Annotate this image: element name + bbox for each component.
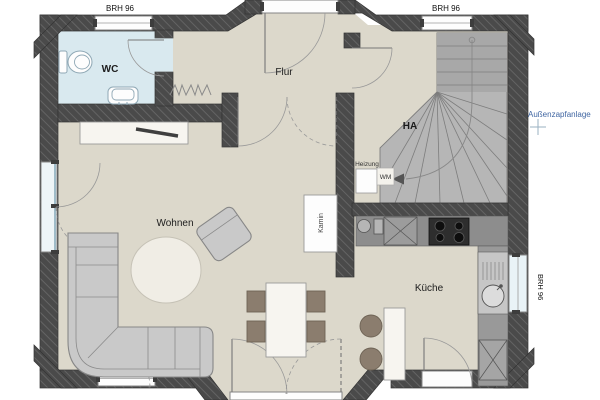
- entrance-pier-left: [245, 0, 262, 14]
- pier-flur-west: [222, 93, 238, 147]
- wc-sink-icon: [108, 87, 138, 105]
- window-right-kitchen: [509, 253, 527, 314]
- ha-door-stub: [344, 33, 360, 48]
- dishwasher-icon: [384, 217, 417, 245]
- chair: [307, 291, 325, 312]
- wc-south-wall: [58, 104, 222, 122]
- kitchen-sink-icon: [482, 285, 504, 307]
- sideboard: [80, 122, 188, 144]
- small-appliance: [374, 219, 383, 234]
- chair: [247, 291, 265, 312]
- label-aussenzapfanlage: Außenzapfanlage: [528, 110, 591, 119]
- dining-table: [266, 283, 306, 357]
- freezer-icon: [479, 340, 507, 380]
- wall-wohnen-kueche: [336, 93, 354, 277]
- window-top-left: [93, 16, 154, 30]
- chair: [307, 321, 325, 342]
- room-label-flur: Flur: [275, 67, 293, 78]
- bar-counter: [384, 308, 405, 380]
- wc-east-wall-top: [155, 30, 173, 38]
- label-heizung: Heizung: [355, 161, 379, 168]
- wall-under-stairs: [352, 203, 508, 216]
- chair: [247, 321, 265, 342]
- bar-stool: [360, 348, 382, 370]
- rug: [131, 237, 201, 303]
- label-brh-top-left: BRH 96: [106, 4, 135, 13]
- label-brh-right: BRH 96: [536, 274, 545, 300]
- stove-icon: [429, 218, 469, 245]
- floor-plan-svg: WC Flur HA Wohnen Küche Heizung WM Kamin…: [0, 0, 600, 400]
- room-label-wohnen: Wohnen: [156, 218, 193, 229]
- annotation-marks: [530, 119, 546, 135]
- room-label-kueche: Küche: [415, 283, 444, 294]
- bar-stool: [360, 315, 382, 337]
- entrance-pier-right: [338, 0, 355, 14]
- floor-plan-canvas: WC Flur HA Wohnen Küche Heizung WM Kamin…: [0, 0, 600, 400]
- label-brh-top-right: BRH 96: [432, 4, 461, 13]
- right-wall: [508, 15, 528, 388]
- corner-sink-icon: [358, 220, 371, 233]
- window-top-right: [420, 16, 474, 30]
- room-label-ha: HA: [403, 121, 417, 132]
- wc-east-wall-bottom: [155, 72, 173, 106]
- room-label-wc: WC: [102, 64, 119, 75]
- label-wm: WM: [380, 174, 392, 181]
- toilet-icon: [59, 51, 92, 73]
- label-kamin: Kamin: [318, 213, 325, 233]
- heizung-box: [356, 169, 377, 193]
